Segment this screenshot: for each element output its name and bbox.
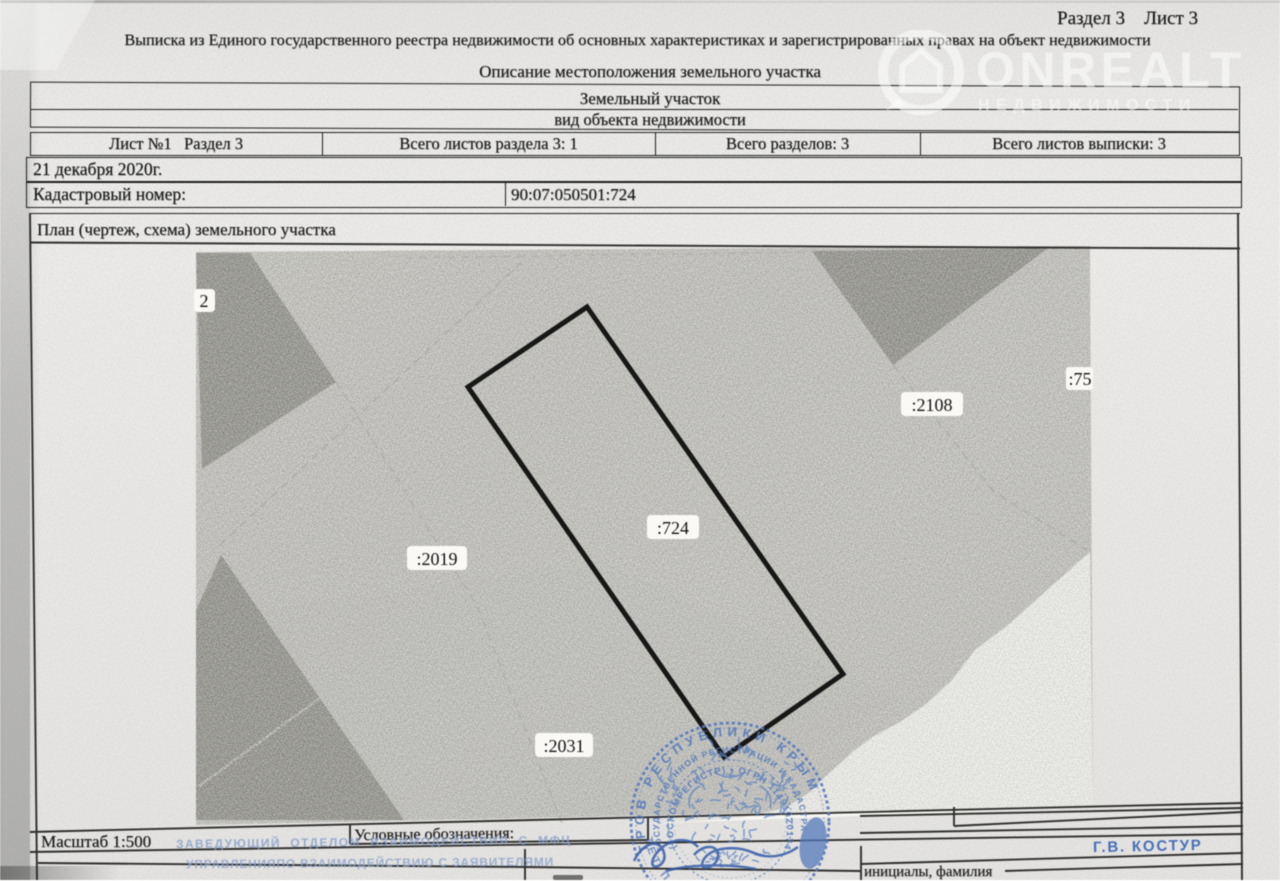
svg-text:НЕДВИЖИМОСТИ: НЕДВИЖИМОСТИ <box>978 97 1197 114</box>
svg-text:(ГОСКОМРЕГИСТР) • ОГРН 1149102: (ГОСКОМРЕГИСТР) • ОГРН 1149102017404 <box>0 0 795 852</box>
svg-text:ONREALT: ONREALT <box>976 42 1245 98</box>
